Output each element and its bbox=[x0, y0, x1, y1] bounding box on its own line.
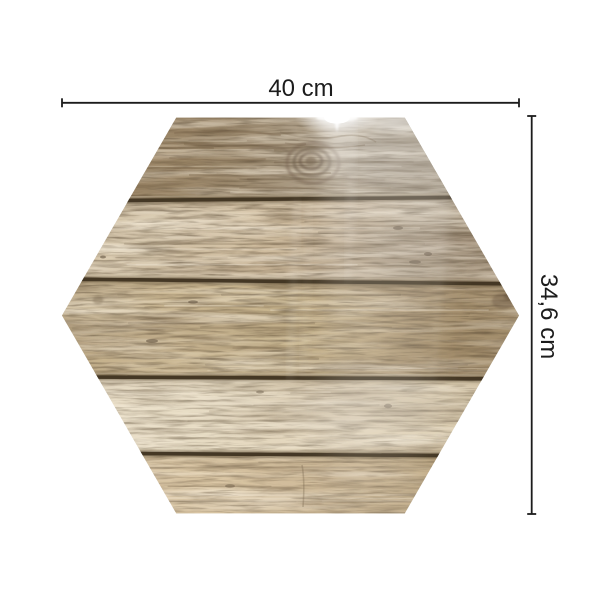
svg-text:40 cm: 40 cm bbox=[268, 75, 333, 102]
svg-text:34,6 cm: 34,6 cm bbox=[535, 274, 562, 359]
